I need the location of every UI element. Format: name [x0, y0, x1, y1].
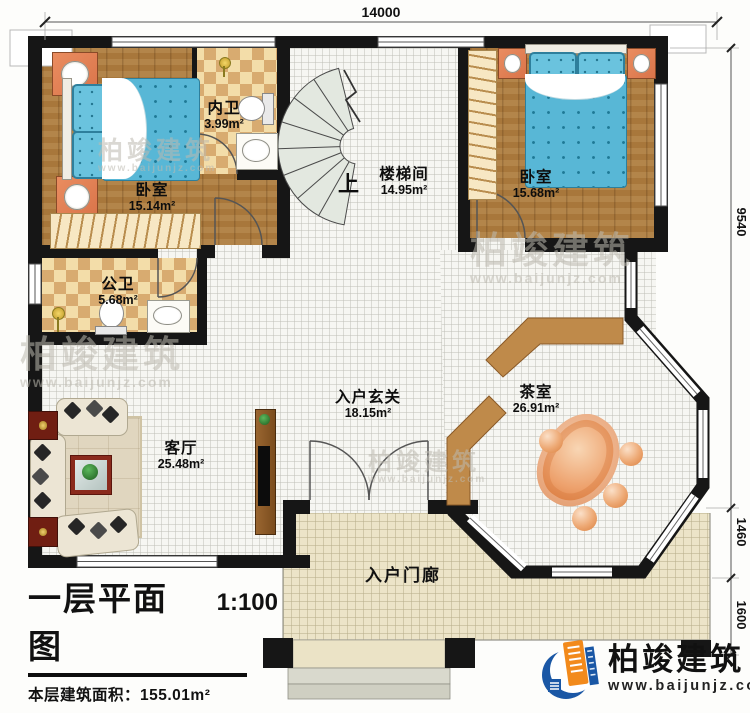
room-label-tea-room: 茶室 26.91m² [513, 384, 560, 415]
plant [82, 464, 98, 480]
side-table [28, 517, 58, 547]
room-area: 15.68m² [513, 186, 560, 200]
side-table [28, 411, 58, 440]
shower-head-icon [219, 57, 231, 69]
shower-arm [57, 317, 59, 332]
room-label-bedroom-right: 卧室 15.68m² [513, 169, 560, 200]
dim-right-lower: 1600 [734, 601, 749, 630]
room-name: 入户玄关 [335, 389, 401, 406]
room-name: 内卫 [204, 100, 244, 117]
title-rule [28, 673, 247, 677]
room-area: 25.48m² [158, 457, 205, 471]
bed-headboard [62, 78, 72, 180]
room-area: 5.68m² [98, 293, 138, 307]
room-name: 客厅 [158, 440, 205, 457]
ledge-top-right [650, 25, 706, 53]
sink [147, 300, 190, 333]
wardrobe [468, 50, 497, 200]
stair-direction-label: 上 [338, 168, 359, 198]
shower-arm [223, 66, 225, 77]
brand-logo: 柏竣建筑 www.baijunjz.com [540, 637, 750, 701]
nightstand [498, 48, 527, 79]
room-label-public-bath: 公卫 5.68m² [98, 276, 138, 307]
room-label-stair-hall: 楼梯间 14.95m² [379, 166, 429, 197]
room-area: 15.14m² [129, 199, 176, 213]
nightstand [627, 48, 656, 79]
room-name: 卧室 [513, 169, 560, 186]
room-area: 26.91m² [513, 401, 560, 415]
dim-right-middle: 1460 [734, 518, 749, 547]
floor-plan-sheet: 14000 9540 1460 1600 [0, 0, 750, 713]
sink [236, 133, 278, 170]
room-name: 楼梯间 [379, 166, 429, 183]
room-name: 公卫 [98, 276, 138, 293]
room-label-bedroom-left: 卧室 15.14m² [129, 182, 176, 213]
room-name: 卧室 [129, 182, 176, 199]
sheet-scale: 1:100 [217, 589, 278, 617]
plant [259, 414, 270, 425]
porch-column-middle [445, 638, 475, 668]
toilet-tank [95, 326, 127, 335]
room-label-inner-bath: 内卫 3.99m² [204, 100, 244, 131]
room-label-entry-foyer: 入户玄关 18.15m² [335, 389, 401, 420]
dim-right-upper: 9540 [734, 208, 749, 237]
nightstand [56, 176, 98, 218]
tea-stool [619, 442, 643, 466]
brand-name: 柏竣建筑 [608, 644, 750, 675]
wardrobe [50, 213, 201, 249]
sheet-title: 一层平面图 [28, 572, 203, 668]
brand-website: www.baijunjz.com [608, 678, 750, 694]
tea-stool [603, 483, 628, 508]
room-area: 3.99m² [204, 117, 244, 131]
room-area: 18.15m² [335, 406, 401, 420]
room-name: 茶室 [513, 384, 560, 401]
floor-area-line: 本层建筑面积：155.01m² [28, 683, 278, 705]
brand-logo-icon [540, 637, 600, 701]
room-area: 14.95m² [379, 183, 429, 197]
dim-top: 14000 [362, 4, 401, 20]
tea-stool [539, 429, 563, 453]
room-label-living-room: 客厅 25.48m² [158, 440, 205, 471]
title-block: 一层平面图 1:100 本层建筑面积：155.01m² 本栋建筑面积：403.0… [28, 572, 278, 713]
tv [258, 446, 270, 506]
tea-stool [572, 506, 597, 531]
room-label-entry-porch: 入户门廊 [365, 561, 441, 586]
